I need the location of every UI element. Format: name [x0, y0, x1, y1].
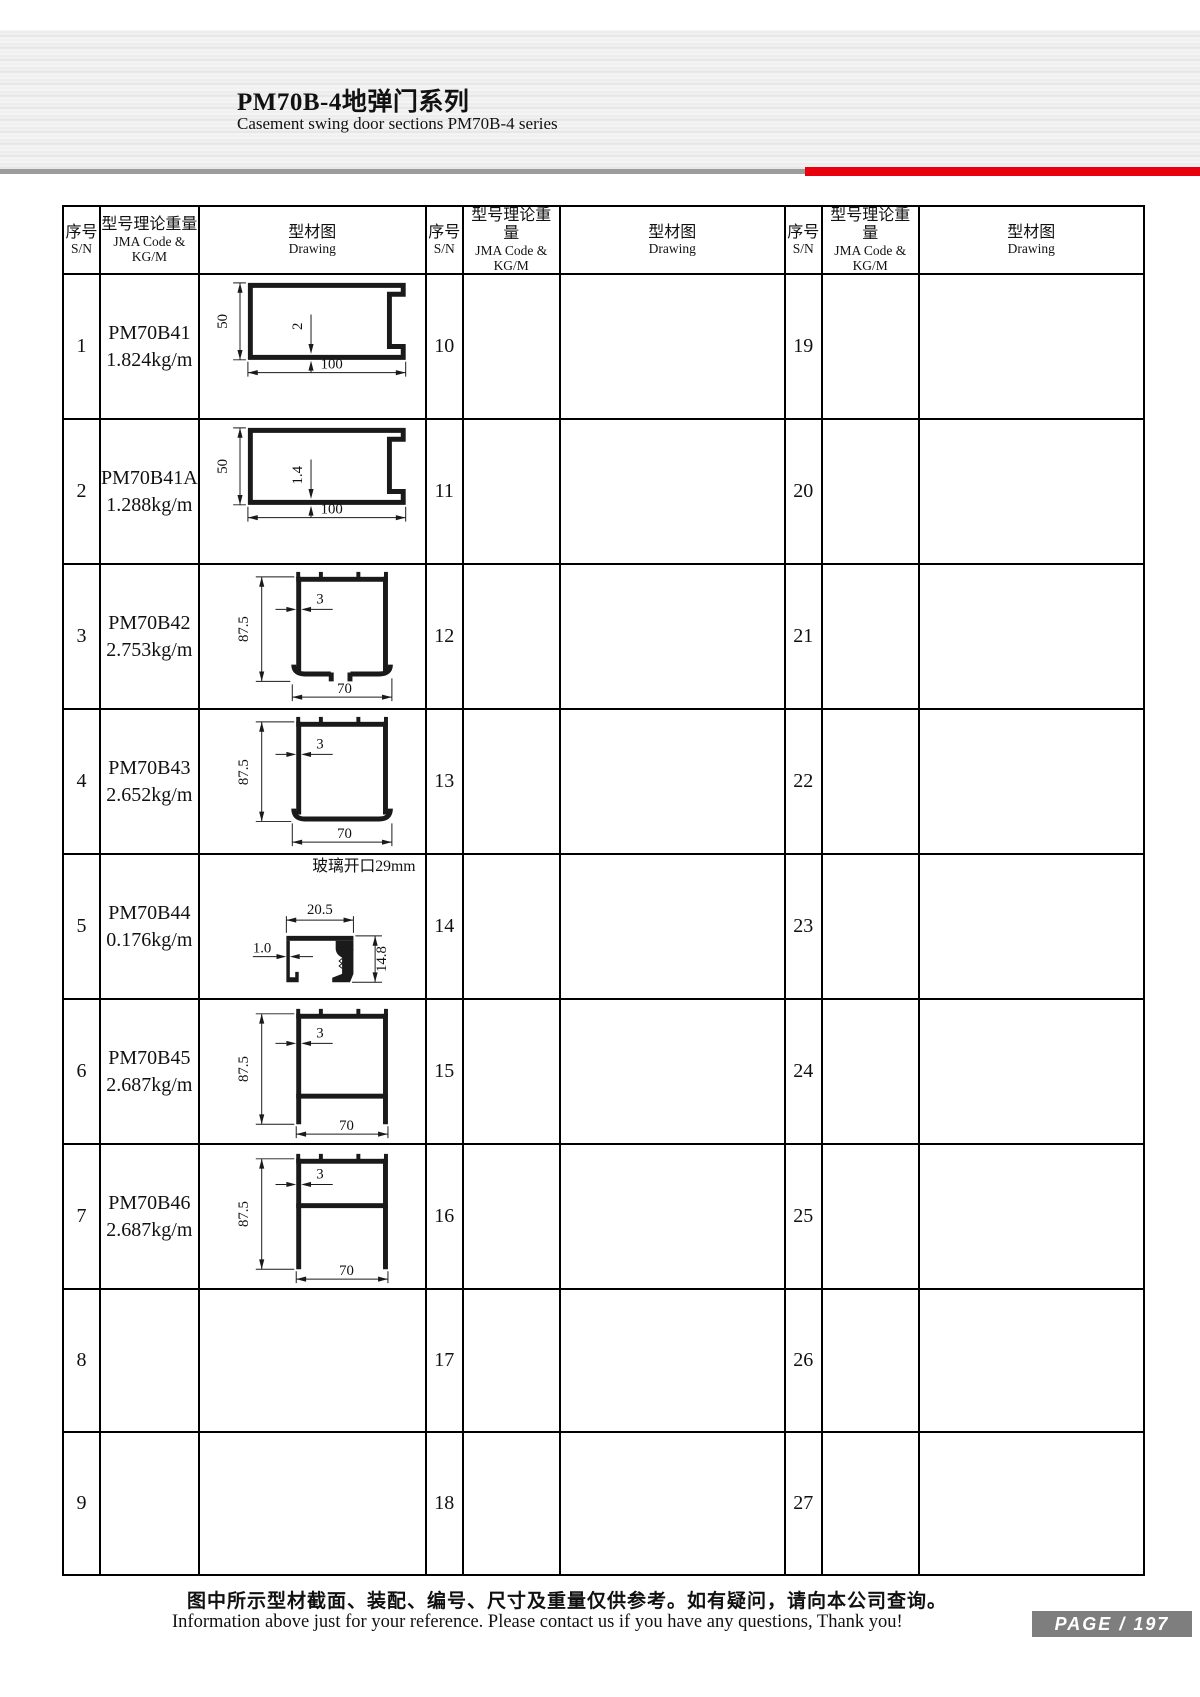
drawing-cell — [560, 709, 785, 854]
drawing-cell: 50 2 100 — [199, 274, 426, 419]
profile-spec-table: 序号S/N 型号理论重量JMA Code & KG/M 型材图Drawing 序… — [62, 205, 1145, 1576]
dim-height-label: 87.5 — [236, 759, 252, 785]
col-header-drawing: 型材图Drawing — [560, 206, 785, 274]
col-header-sn: 序号S/N — [426, 206, 463, 274]
drawing-cell — [919, 1432, 1144, 1575]
profile-weight: 2.652kg/m — [101, 782, 198, 809]
code-cell — [463, 1432, 560, 1575]
code-cell — [463, 564, 560, 709]
drawing-cell — [199, 1432, 426, 1575]
code-cell — [822, 1144, 919, 1289]
sn-cell: 6 — [63, 999, 100, 1144]
code-cell — [822, 564, 919, 709]
dim-thickness: 3 — [275, 1026, 332, 1046]
footer-note-zh: 图中所示型材截面、装配、编号、尺寸及重量仅供参考。如有疑问，请向本公司查询。 — [187, 1586, 947, 1613]
code-cell — [822, 1289, 919, 1432]
drawing-cell: 50 1.4 100 — [199, 419, 426, 564]
col-header-drawing: 型材图Drawing — [199, 206, 426, 274]
sn-cell: 9 — [63, 1432, 100, 1575]
dim-thickness-label: 3 — [316, 1026, 323, 1042]
profile-outline — [248, 428, 406, 505]
col-header-code: 型号理论重量JMA Code & KG/M — [822, 206, 919, 274]
drawing-cell — [560, 1144, 785, 1289]
profile-code: PM70B43 — [101, 755, 198, 782]
dim-thickness: 3 — [275, 591, 332, 611]
drawing-cell — [560, 419, 785, 564]
glass-opening-note: 玻璃开口29mm — [312, 857, 416, 875]
code-cell: PM70B46 2.687kg/m — [100, 1144, 199, 1289]
col-header-code-zh: 型号理论重量 — [101, 216, 198, 234]
code-cell — [463, 854, 560, 999]
drawing-cell — [560, 854, 785, 999]
divider-bar-gray — [0, 169, 805, 174]
sn-cell: 15 — [426, 999, 463, 1144]
col-header-drawing-zh: 型材图 — [200, 224, 425, 242]
drawing-cell: 87.5 3 70 — [199, 999, 426, 1144]
profile-weight: 2.687kg/m — [101, 1072, 198, 1099]
dim-height: 14.8 — [352, 936, 390, 982]
sn-cell: 25 — [785, 1144, 822, 1289]
col-header-drawing: 型材图Drawing — [919, 206, 1144, 274]
sn-cell: 8 — [63, 1289, 100, 1432]
code-cell — [463, 1289, 560, 1432]
dim-width-label: 100 — [320, 357, 342, 373]
sn-cell: 2 — [63, 419, 100, 564]
dim-thickness-label: 3 — [316, 591, 323, 607]
drawing-cell — [560, 1432, 785, 1575]
profile-drawing-pm70b41: 50 2 100 — [200, 275, 425, 418]
col-header-sn-en: S/N — [64, 241, 99, 256]
dim-width: 70 — [292, 823, 392, 846]
dim-thickness-label: 2 — [290, 323, 306, 330]
code-cell — [463, 1144, 560, 1289]
profile-code: PM70B44 — [101, 900, 198, 927]
drawing-cell — [560, 274, 785, 419]
table-row: 3 PM70B42 2.753kg/m — [63, 564, 1144, 709]
col-header-code: 型号理论重量JMA Code & KG/M — [100, 206, 199, 274]
page-subtitle: Casement swing door sections PM70B-4 ser… — [237, 114, 558, 134]
profile-code: PM70B41A — [101, 465, 198, 492]
dim-width-label: 70 — [339, 1263, 354, 1279]
code-cell — [100, 1289, 199, 1432]
dim-thickness-label: 1.0 — [253, 941, 271, 957]
drawing-cell — [919, 419, 1144, 564]
dim-width-label: 70 — [337, 681, 352, 697]
code-cell: PM70B44 0.176kg/m — [100, 854, 199, 999]
profile-drawing-pm70b45: 87.5 3 70 — [200, 1000, 425, 1143]
table-row: 7 PM70B46 2.687kg/m — [63, 1144, 1144, 1289]
dim-height-label: 14.8 — [374, 946, 390, 972]
sn-cell: 19 — [785, 274, 822, 419]
drawing-cell — [919, 564, 1144, 709]
profile-outline — [293, 717, 390, 819]
profile-drawing-pm70b46: 87.5 3 70 — [200, 1145, 425, 1288]
dim-thickness: 3 — [275, 1167, 332, 1187]
dim-thickness: 1.0 — [253, 941, 313, 960]
profile-outline — [248, 283, 406, 360]
sn-cell: 12 — [426, 564, 463, 709]
drawing-cell — [919, 1144, 1144, 1289]
code-cell — [463, 709, 560, 854]
dim-thickness: 1.4 — [290, 459, 313, 517]
dim-thickness-label: 1.4 — [290, 465, 306, 484]
drawing-cell — [919, 999, 1144, 1144]
dim-width: 70 — [296, 1118, 388, 1138]
col-header-sn: 序号S/N — [785, 206, 822, 274]
code-cell — [822, 709, 919, 854]
code-cell — [822, 854, 919, 999]
drawing-cell — [919, 274, 1144, 419]
profile-drawing-pm70b44: 玻璃开口29mm 20.5 — [200, 855, 425, 998]
profile-code: PM70B42 — [101, 610, 198, 637]
dim-height-label: 87.5 — [236, 1201, 252, 1227]
table-row: 6 PM70B45 2.687kg/m — [63, 999, 1144, 1144]
drawing-cell — [560, 564, 785, 709]
dim-width-label: 70 — [339, 1118, 354, 1134]
page-number-badge: PAGE / 197 — [1032, 1611, 1192, 1637]
dim-width: 70 — [296, 1263, 388, 1283]
drawing-cell — [919, 709, 1144, 854]
drawing-cell — [560, 999, 785, 1144]
code-cell — [822, 1432, 919, 1575]
sn-cell: 24 — [785, 999, 822, 1144]
code-cell — [463, 999, 560, 1144]
drawing-cell — [199, 1289, 426, 1432]
dim-height: 87.5 — [236, 577, 294, 682]
profile-drawing-pm70b42: 87.5 3 70 — [200, 565, 425, 708]
profile-outline — [296, 1154, 388, 1269]
sn-cell: 18 — [426, 1432, 463, 1575]
dim-height: 87.5 — [236, 722, 294, 822]
profile-weight: 2.753kg/m — [101, 637, 198, 664]
sn-cell: 1 — [63, 274, 100, 419]
sn-cell: 21 — [785, 564, 822, 709]
code-cell: PM70B43 2.652kg/m — [100, 709, 199, 854]
dim-width: 20.5 — [286, 902, 353, 933]
sn-cell: 14 — [426, 854, 463, 999]
catalog-page: PM70B-4地弹门系列 Casement swing door section… — [0, 0, 1200, 1697]
table-header-row: 序号S/N 型号理论重量JMA Code & KG/M 型材图Drawing 序… — [63, 206, 1144, 274]
dim-thickness: 2 — [290, 314, 313, 372]
code-cell: PM70B42 2.753kg/m — [100, 564, 199, 709]
sn-cell: 11 — [426, 419, 463, 564]
dim-width: 70 — [292, 678, 392, 701]
code-cell — [100, 1432, 199, 1575]
dim-height-label: 87.5 — [236, 1056, 252, 1082]
drawing-cell — [560, 1289, 785, 1432]
dim-thickness: 3 — [275, 736, 332, 756]
dim-height-label: 87.5 — [236, 616, 252, 642]
col-header-drawing-en: Drawing — [200, 241, 425, 256]
col-header-sn: 序号S/N — [63, 206, 100, 274]
drawing-cell: 87.5 3 70 — [199, 709, 426, 854]
dim-width-label: 100 — [320, 502, 342, 518]
dim-height: 87.5 — [236, 1159, 294, 1269]
header-stripe-band — [0, 30, 1200, 170]
profile-code: PM70B41 — [101, 320, 198, 347]
code-cell — [463, 419, 560, 564]
drawing-cell: 87.5 3 70 — [199, 564, 426, 709]
sn-cell: 5 — [63, 854, 100, 999]
profile-weight: 1.824kg/m — [101, 347, 198, 374]
profile-drawing-pm70b41a: 50 1.4 100 — [200, 420, 425, 563]
code-cell — [822, 419, 919, 564]
col-header-sn-zh: 序号 — [64, 224, 99, 242]
dim-height-label: 50 — [215, 314, 231, 329]
profile-code: PM70B45 — [101, 1045, 198, 1072]
footer-note-en: Information above just for your referenc… — [172, 1612, 903, 1633]
sn-cell: 13 — [426, 709, 463, 854]
dim-height-label: 50 — [215, 459, 231, 474]
profile-outline — [286, 936, 353, 982]
drawing-cell: 87.5 3 70 — [199, 1144, 426, 1289]
sn-cell: 4 — [63, 709, 100, 854]
drawing-cell — [919, 854, 1144, 999]
col-header-code: 型号理论重量JMA Code & KG/M — [463, 206, 560, 274]
sn-cell: 17 — [426, 1289, 463, 1432]
sn-cell: 27 — [785, 1432, 822, 1575]
divider-bar-red — [805, 167, 1200, 176]
drawing-cell: 玻璃开口29mm 20.5 — [199, 854, 426, 999]
dim-thickness-label: 3 — [316, 736, 323, 752]
code-cell — [463, 274, 560, 419]
dim-width-label: 20.5 — [307, 902, 333, 918]
code-cell — [822, 999, 919, 1144]
code-cell: PM70B41 1.824kg/m — [100, 274, 199, 419]
profile-code: PM70B46 — [101, 1190, 198, 1217]
code-cell: PM70B41A 1.288kg/m — [100, 419, 199, 564]
sn-cell: 22 — [785, 709, 822, 854]
profile-weight: 1.288kg/m — [101, 492, 198, 519]
sn-cell: 20 — [785, 419, 822, 564]
table-row: 4 PM70B43 2.652kg/m — [63, 709, 1144, 854]
table-row: 2 PM70B41A 1.288kg/m 50 — [63, 419, 1144, 564]
code-cell: PM70B45 2.687kg/m — [100, 999, 199, 1144]
col-header-code-en: JMA Code & KG/M — [101, 234, 198, 264]
dim-height: 87.5 — [236, 1014, 294, 1124]
sn-cell: 23 — [785, 854, 822, 999]
profile-outline — [293, 572, 390, 681]
sn-cell: 3 — [63, 564, 100, 709]
sn-cell: 26 — [785, 1289, 822, 1432]
table-row: 1 PM70B41 1.824kg/m 50 — [63, 274, 1144, 419]
dim-width-label: 70 — [337, 826, 352, 842]
dim-height: 50 — [215, 283, 246, 360]
table-row: 8 17 26 — [63, 1289, 1144, 1432]
dim-height: 50 — [215, 428, 246, 505]
sn-cell: 16 — [426, 1144, 463, 1289]
table-row: 5 PM70B44 0.176kg/m 玻璃开口29mm — [63, 854, 1144, 999]
page-title: PM70B-4地弹门系列 — [237, 82, 469, 118]
dim-thickness-label: 3 — [316, 1167, 323, 1183]
profile-weight: 2.687kg/m — [101, 1217, 198, 1244]
sn-cell: 10 — [426, 274, 463, 419]
table-row: 9 18 27 — [63, 1432, 1144, 1575]
drawing-cell — [919, 1289, 1144, 1432]
code-cell — [822, 274, 919, 419]
profile-drawing-pm70b43: 87.5 3 70 — [200, 710, 425, 853]
profile-outline — [296, 1009, 388, 1124]
profile-weight: 0.176kg/m — [101, 927, 198, 954]
sn-cell: 7 — [63, 1144, 100, 1289]
